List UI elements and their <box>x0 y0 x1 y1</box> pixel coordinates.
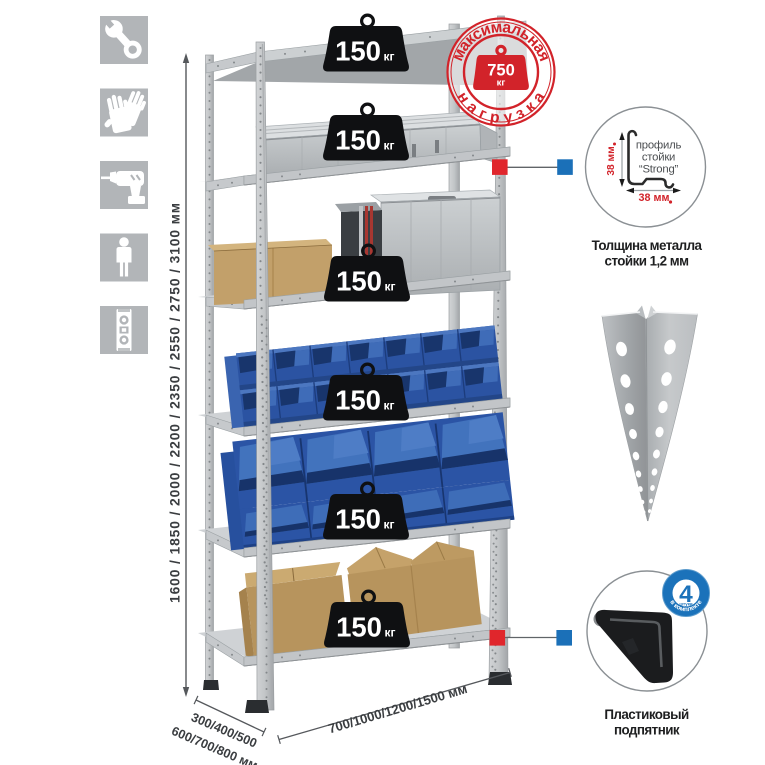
svg-text:38 мм: 38 мм <box>606 146 617 175</box>
svg-text:кг: кг <box>384 399 395 413</box>
svg-text:профиль: профиль <box>636 140 682 152</box>
svg-text:кг: кг <box>497 78 506 89</box>
svg-text:кг: кг <box>385 280 396 294</box>
svg-text:стойки 1,2 мм: стойки 1,2 мм <box>605 254 689 269</box>
svg-text:кг: кг <box>384 50 395 64</box>
svg-text:150: 150 <box>335 385 381 416</box>
svg-text:150: 150 <box>335 504 381 535</box>
svg-text:кг: кг <box>384 139 395 153</box>
svg-text:стойки: стойки <box>642 152 675 164</box>
svg-text:1600 / 1850 / 2000 / 2200 / 23: 1600 / 1850 / 2000 / 2200 / 2350 / 2550 … <box>168 203 183 603</box>
svg-text:кг: кг <box>384 518 395 532</box>
svg-text:кг: кг <box>385 626 396 640</box>
svg-text:150: 150 <box>336 266 382 297</box>
svg-text:“Strong”: “Strong” <box>639 164 679 176</box>
svg-text:150: 150 <box>336 612 382 643</box>
svg-text:150: 150 <box>335 125 381 156</box>
svg-text:150: 150 <box>335 36 381 67</box>
svg-text:Толщина металла: Толщина металла <box>592 238 703 253</box>
svg-text:Пластиковый: Пластиковый <box>604 707 689 722</box>
svg-text:подпятник: подпятник <box>614 723 680 738</box>
svg-text:38 мм: 38 мм <box>639 192 670 204</box>
